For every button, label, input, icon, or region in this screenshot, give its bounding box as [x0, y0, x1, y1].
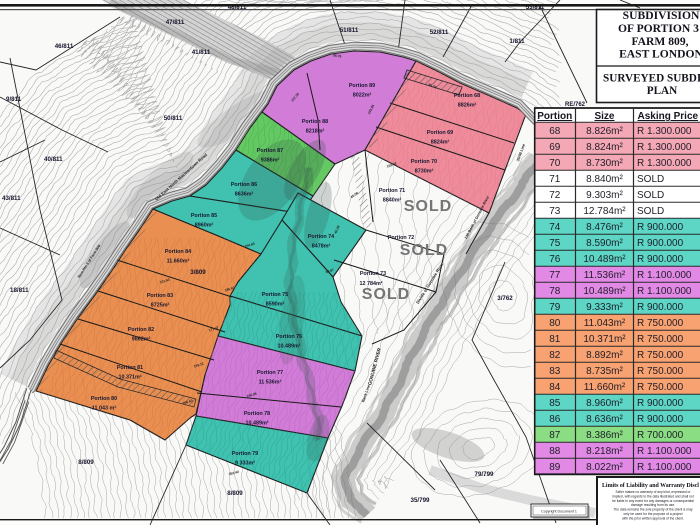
svg-text:R 1.300.000: R 1.300.000 — [637, 158, 692, 169]
svg-text:73: 73 — [549, 206, 561, 217]
svg-text:R 750.000: R 750.000 — [637, 350, 684, 361]
svg-text:The data remains the sole prop: The data remains the sole property of th… — [613, 508, 693, 512]
svg-text:84: 84 — [549, 382, 561, 393]
svg-text:76: 76 — [549, 254, 561, 265]
svg-text:11.660m²: 11.660m² — [584, 382, 626, 393]
svg-text:8.590m²: 8.590m² — [586, 238, 623, 249]
svg-text:SOLD: SOLD — [637, 174, 664, 185]
svg-text:R 750.000: R 750.000 — [637, 366, 684, 377]
svg-text:R 700.000: R 700.000 — [637, 430, 684, 441]
svg-text:8.826m²: 8.826m² — [586, 126, 623, 137]
svg-text:71: 71 — [549, 174, 561, 185]
svg-text:OF PORTION 3 OF: OF PORTION 3 OF — [618, 22, 700, 35]
svg-text:8.476m²: 8.476m² — [586, 222, 623, 233]
svg-text:8.730m²: 8.730m² — [586, 158, 623, 169]
svg-text:12.784m²: 12.784m² — [583, 206, 626, 217]
svg-text:R 1.100.000: R 1.100.000 — [637, 270, 692, 281]
svg-text:R 900.000: R 900.000 — [637, 238, 684, 249]
svg-text:77: 77 — [549, 270, 561, 281]
svg-text:8.386m²: 8.386m² — [586, 430, 623, 441]
svg-text:11.536m²: 11.536m² — [584, 270, 626, 281]
svg-text:8.960m²: 8.960m² — [586, 398, 623, 409]
svg-text:be liable in any event for any: be liable in any event for any damages o… — [612, 499, 694, 503]
svg-text:79: 79 — [549, 302, 561, 313]
svg-text:Copyright Document 1: Copyright Document 1 — [541, 510, 577, 514]
svg-text:R 750.000: R 750.000 — [637, 382, 684, 393]
svg-text:10.489m²: 10.489m² — [583, 254, 626, 265]
svg-text:PLAN: PLAN — [647, 85, 677, 97]
svg-text:69: 69 — [549, 142, 561, 153]
svg-text:implied, with regards to the d: implied, with regards to the data illust… — [612, 494, 693, 498]
svg-text:75: 75 — [549, 238, 561, 249]
svg-text:R 1.100.000: R 1.100.000 — [637, 462, 692, 473]
svg-text:R 900.000: R 900.000 — [637, 398, 684, 409]
svg-text:9.303m²: 9.303m² — [586, 190, 623, 201]
svg-text:Seller makes no warranty of an: Seller makes no warranty of any kind, ex… — [616, 490, 692, 494]
svg-text:10.489m²: 10.489m² — [583, 286, 626, 297]
svg-text:88: 88 — [549, 446, 561, 457]
svg-text:R 900.000: R 900.000 — [637, 302, 684, 313]
svg-text:85: 85 — [549, 398, 561, 409]
svg-text:SOLD: SOLD — [637, 206, 664, 217]
svg-text:SOLD: SOLD — [637, 190, 664, 201]
svg-text:R 900.000: R 900.000 — [637, 222, 684, 233]
svg-text:Size: Size — [594, 111, 614, 122]
svg-text:80: 80 — [549, 318, 561, 329]
svg-text:with the prior written approva: with the prior written approval of the c… — [622, 516, 684, 520]
svg-text:R 1.100.000: R 1.100.000 — [637, 446, 692, 457]
svg-text:R 750.000: R 750.000 — [637, 334, 684, 345]
svg-text:70: 70 — [549, 158, 561, 169]
svg-text:78: 78 — [549, 286, 561, 297]
svg-text:86: 86 — [549, 414, 561, 425]
svg-text:R 750.000: R 750.000 — [637, 318, 684, 329]
svg-text:R 1.300.000: R 1.300.000 — [637, 126, 692, 137]
svg-text:Asking Price: Asking Price — [638, 111, 699, 122]
svg-text:R 900.000: R 900.000 — [637, 414, 684, 425]
svg-text:87: 87 — [549, 430, 561, 441]
svg-text:R 1.100.000: R 1.100.000 — [637, 286, 692, 297]
svg-text:SURVEYED SUBDIVISION: SURVEYED SUBDIVISION — [603, 73, 700, 85]
svg-text:89: 89 — [549, 462, 561, 473]
svg-text:only be used for the purpose o: only be used for the purpose of a projec… — [623, 512, 682, 516]
svg-text:68: 68 — [549, 126, 561, 137]
svg-text:EAST LONDON: EAST LONDON — [619, 48, 700, 61]
svg-text:11.043m²: 11.043m² — [584, 318, 626, 329]
svg-text:FARM 809,: FARM 809, — [631, 35, 688, 48]
svg-text:Portion: Portion — [537, 111, 572, 122]
svg-text:74: 74 — [549, 222, 561, 233]
svg-text:83: 83 — [549, 366, 561, 377]
svg-text:8.824m²: 8.824m² — [586, 142, 623, 153]
svg-text:8.636m²: 8.636m² — [586, 414, 623, 425]
svg-text:82: 82 — [549, 350, 561, 361]
svg-text:8.218m²: 8.218m² — [586, 446, 623, 457]
svg-text:SUBDIVISION: SUBDIVISION — [623, 9, 700, 22]
svg-text:8.840m²: 8.840m² — [586, 174, 623, 185]
svg-text:10.371m²: 10.371m² — [583, 334, 626, 345]
svg-text:72: 72 — [549, 190, 561, 201]
svg-text:R 900.000: R 900.000 — [637, 254, 684, 265]
svg-text:8.022m²: 8.022m² — [586, 462, 623, 473]
svg-text:8.892m²: 8.892m² — [586, 350, 623, 361]
svg-text:81: 81 — [549, 334, 561, 345]
svg-text:9.333m²: 9.333m² — [586, 302, 623, 313]
svg-text:damage resulting from its use.: damage resulting from its use. — [631, 503, 675, 507]
svg-text:R 1.300.000: R 1.300.000 — [637, 142, 692, 153]
svg-text:Limits of Liability and Warran: Limits of Liability and Warranty Discl — [602, 483, 699, 489]
svg-text:8.735m²: 8.735m² — [586, 366, 623, 377]
